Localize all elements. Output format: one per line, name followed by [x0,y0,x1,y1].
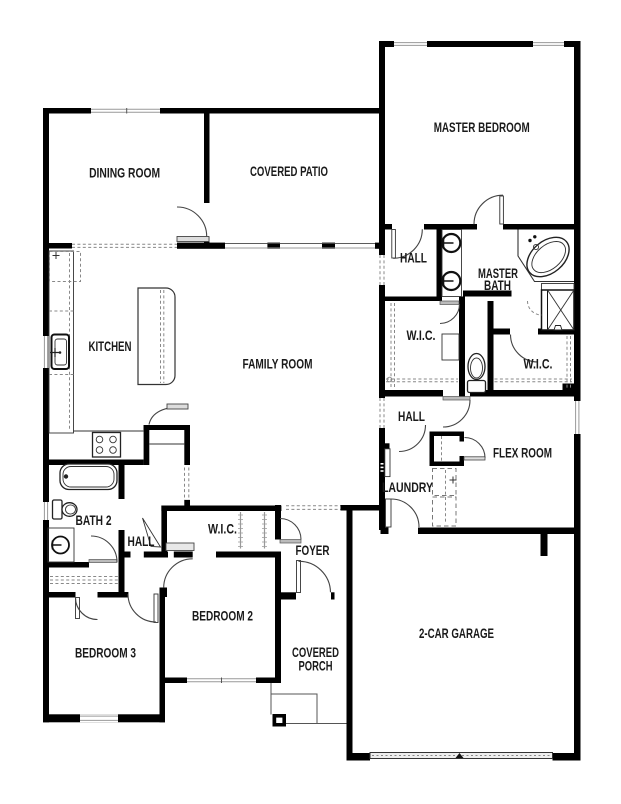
svg-text:BEDROOM 3: BEDROOM 3 [75,645,136,661]
svg-text:HALL: HALL [400,250,427,266]
svg-text:FAMILY ROOM: FAMILY ROOM [243,356,313,372]
svg-text:FLEX ROOM: FLEX ROOM [493,444,552,460]
svg-text:KITCHEN: KITCHEN [89,338,132,354]
svg-text:HALL: HALL [128,533,155,549]
svg-text:W.I.C.: W.I.C. [208,521,237,537]
svg-text:HALL: HALL [398,408,425,424]
svg-text:W.I.C.: W.I.C. [407,327,436,343]
svg-text:MASTER BEDROOM: MASTER BEDROOM [434,119,530,135]
svg-text:BATH: BATH [484,277,511,293]
svg-text:W.I.C.: W.I.C. [524,356,553,372]
svg-text:PORCH: PORCH [299,658,333,674]
svg-text:FOYER: FOYER [296,542,330,558]
svg-text:2-CAR GARAGE: 2-CAR GARAGE [419,625,494,641]
svg-text:BATH 2: BATH 2 [76,512,112,528]
svg-text:DINING ROOM: DINING ROOM [89,165,160,181]
svg-text:COVERED PATIO: COVERED PATIO [250,163,328,179]
svg-text:LAUNDRY: LAUNDRY [382,479,433,495]
svg-text:BEDROOM 2: BEDROOM 2 [192,608,253,624]
